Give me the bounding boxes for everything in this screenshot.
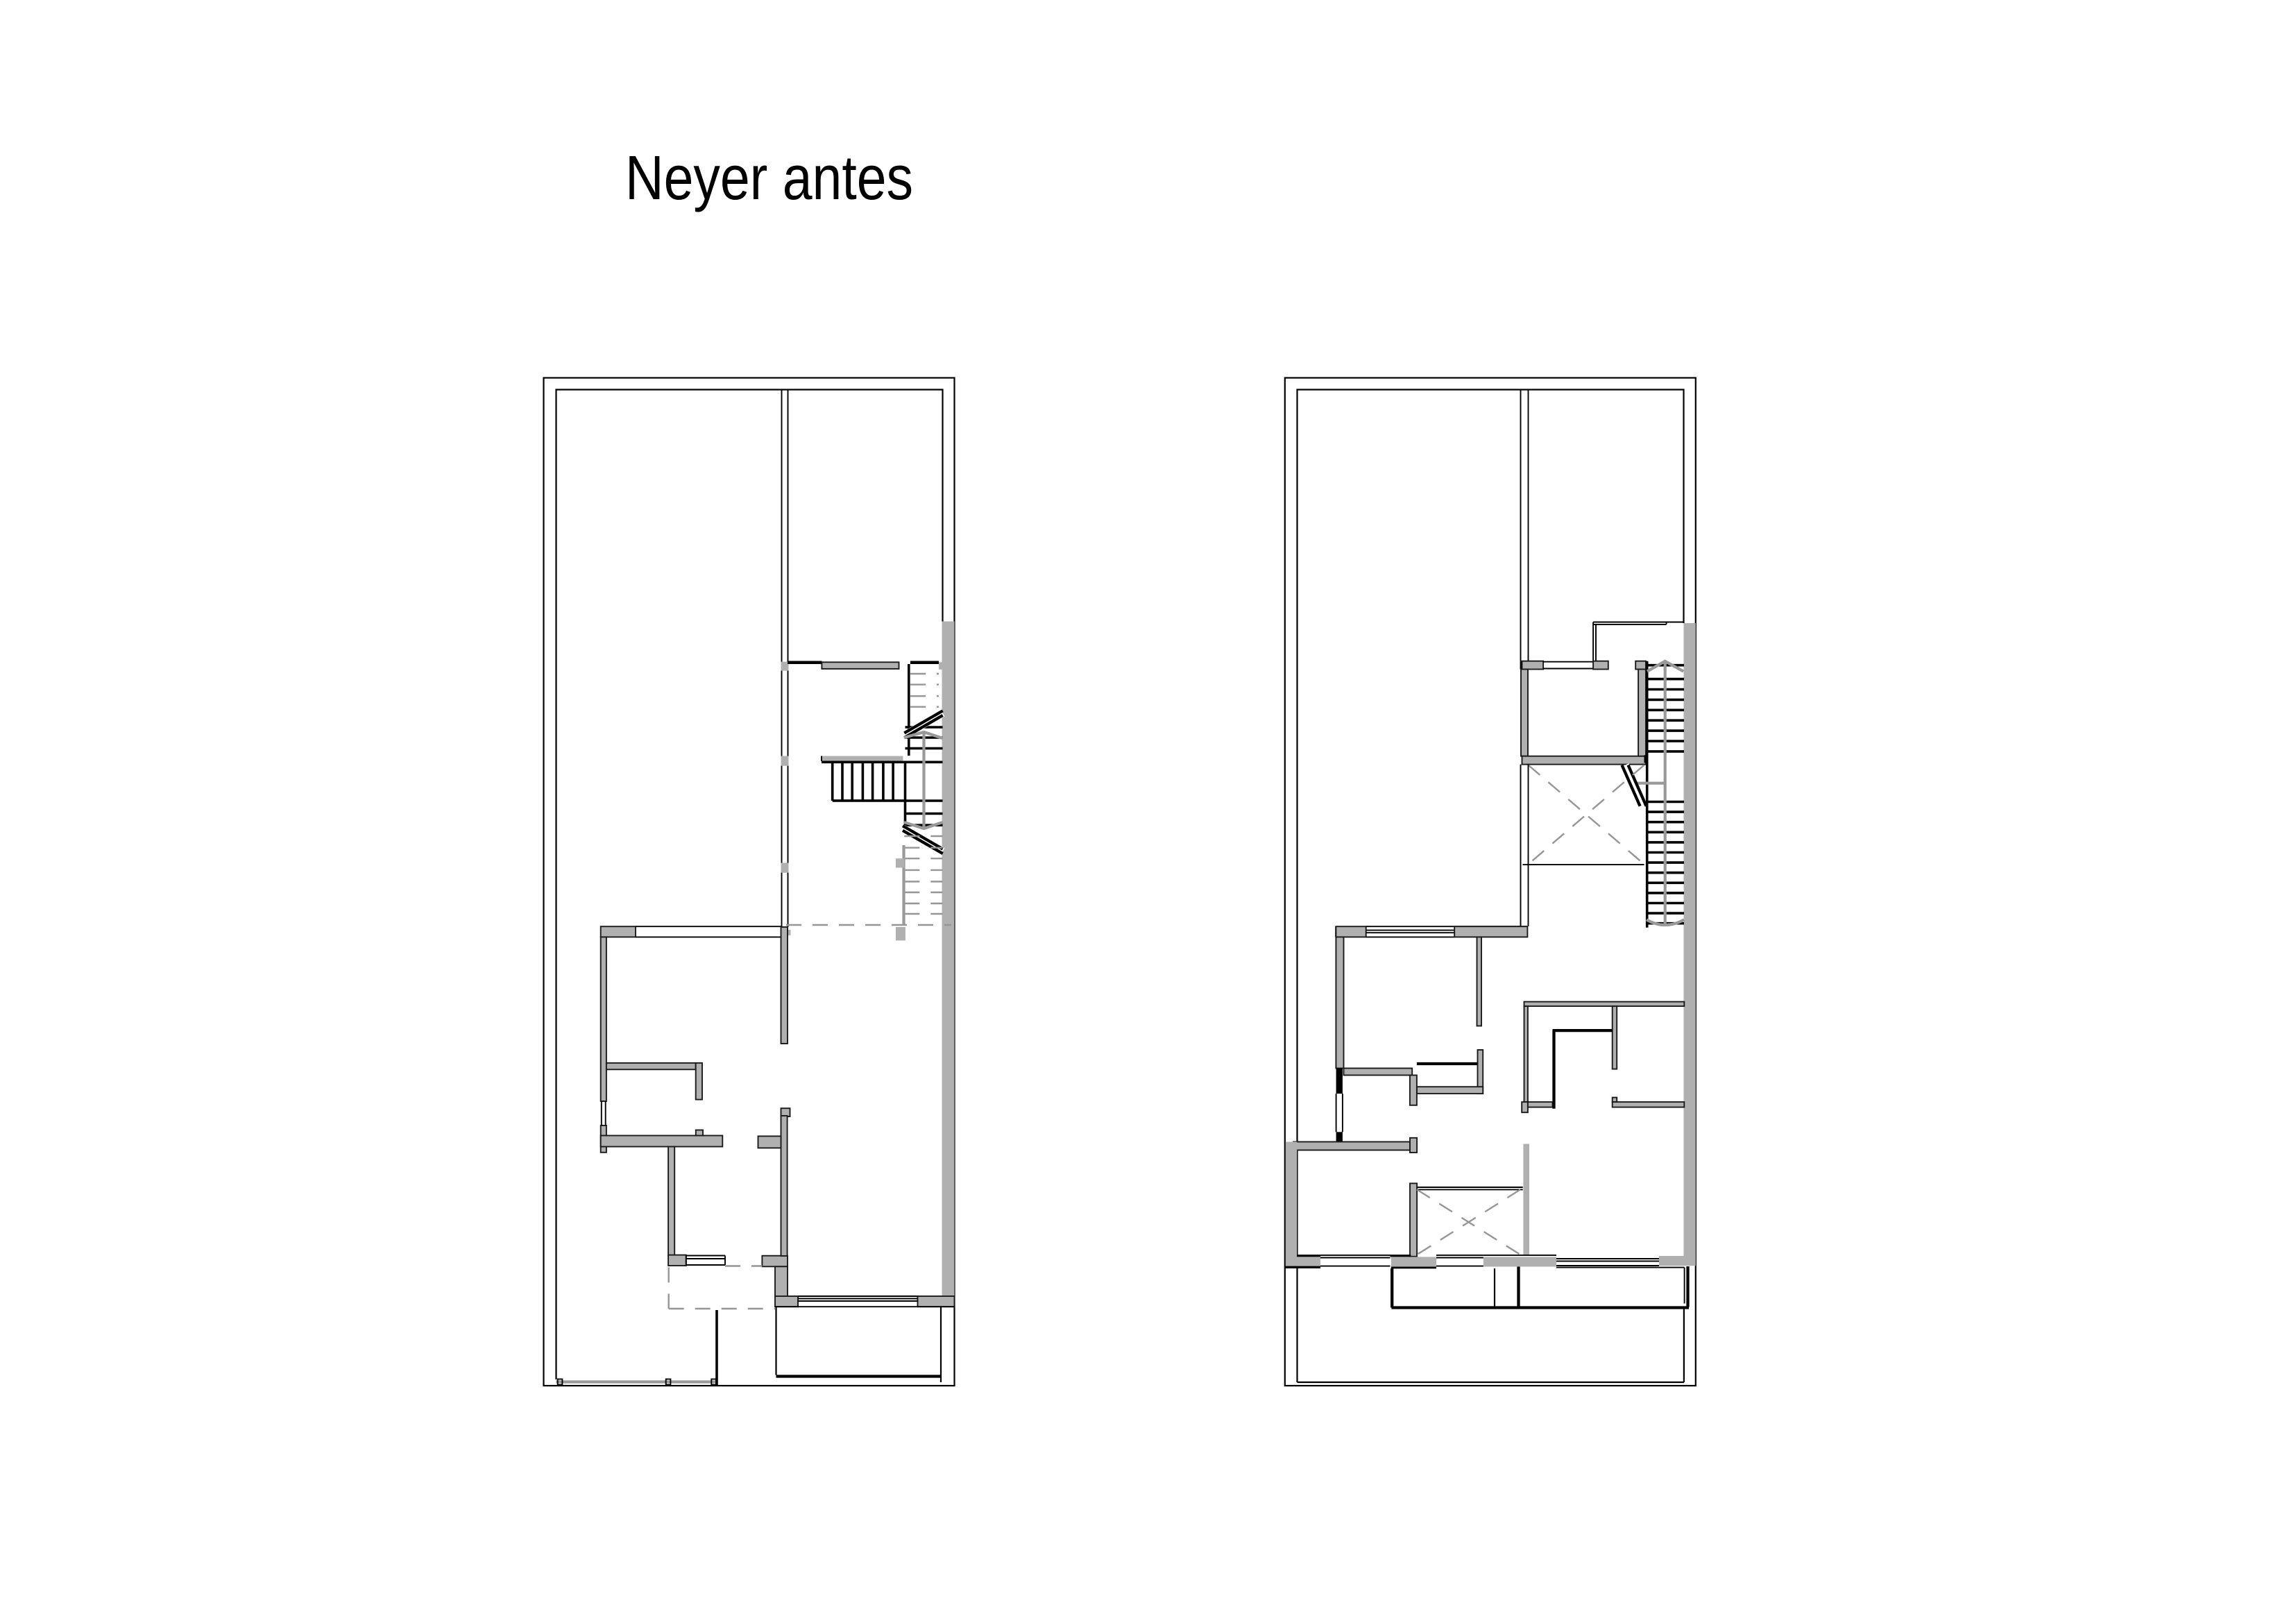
svg-text:Neyer antes: Neyer antes <box>625 144 913 213</box>
